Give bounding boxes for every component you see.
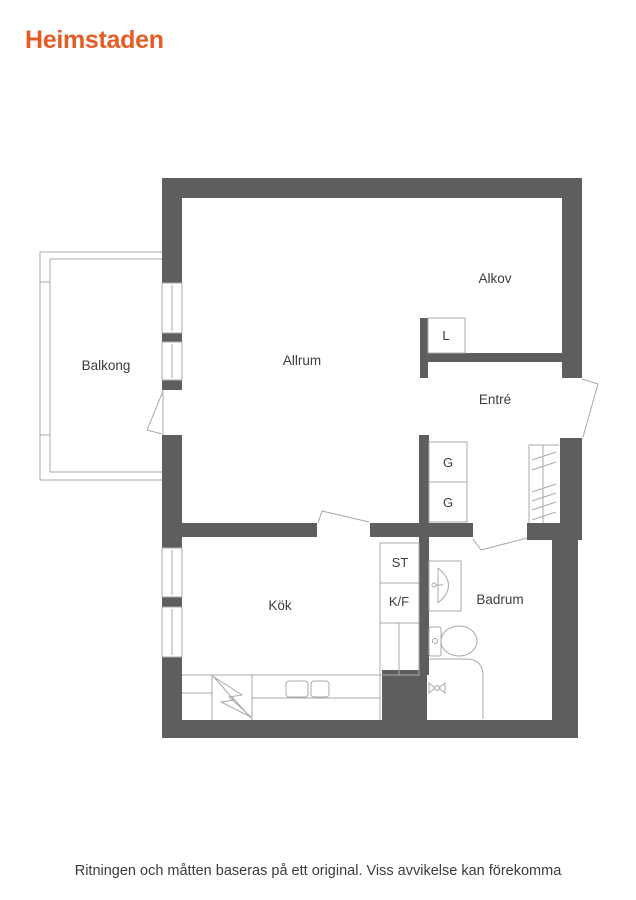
wall-segment xyxy=(162,333,182,342)
wall-segment xyxy=(162,657,182,720)
wall-segment xyxy=(560,438,582,523)
walls xyxy=(162,178,582,738)
wall-segment xyxy=(162,198,182,283)
bathroom-sink-icon xyxy=(429,561,461,611)
room-label-badrum: Badrum xyxy=(476,592,523,607)
wall-segment xyxy=(162,597,182,607)
floorplan-page: Heimstaden xyxy=(0,0,636,900)
wall-segment xyxy=(419,435,429,675)
sink-tap xyxy=(432,583,436,587)
wall-segment xyxy=(562,198,582,378)
room-label-alkov: Alkov xyxy=(478,271,511,286)
hanger-tick xyxy=(532,512,556,520)
wall-segment xyxy=(162,178,582,198)
cabinet-label-st: ST xyxy=(392,555,409,570)
hanger-tick xyxy=(532,502,556,510)
toilet-tank xyxy=(429,627,441,656)
kitchen-door-swing xyxy=(318,511,369,523)
coat-rack xyxy=(529,445,559,523)
room-label-kok: Kök xyxy=(268,598,292,613)
wall-segment xyxy=(552,537,578,738)
wall-segment xyxy=(428,353,562,362)
wall-segment xyxy=(420,318,428,378)
kitchen-counter xyxy=(182,675,380,720)
hanger-tick xyxy=(532,493,556,501)
entry-door-swing xyxy=(582,379,598,437)
kitchen-sink-basin xyxy=(286,681,308,697)
wall-segment xyxy=(382,670,427,720)
closet-label-g-upper: G xyxy=(443,455,453,470)
wall-segment xyxy=(162,720,578,738)
kitchen-sink-basin xyxy=(311,681,329,697)
room-label-balkong: Balkong xyxy=(82,358,131,373)
toilet-bowl xyxy=(441,626,477,656)
wall-segment xyxy=(162,380,182,390)
hanger-tick xyxy=(532,462,556,470)
bathroom-door-swing xyxy=(473,538,527,550)
bathroom-fixtures xyxy=(429,561,483,719)
hanger-tick xyxy=(532,452,556,460)
disclaimer-text: Ritningen och måtten baseras på ett orig… xyxy=(0,863,636,879)
toilet-flush-button xyxy=(433,639,438,644)
room-label-allrum: Allrum xyxy=(283,353,321,368)
closet-label-l: L xyxy=(442,328,449,343)
closet-label-g-lower: G xyxy=(443,495,453,510)
wall-segment xyxy=(162,523,317,537)
floorplan-drawing: Balkong Allrum Alkov Entré Kök Badrum L … xyxy=(0,0,636,840)
shower-area xyxy=(429,659,483,719)
hanger-tick xyxy=(532,484,556,492)
cabinet-label-kf: K/F xyxy=(389,594,409,609)
balcony-door-swing xyxy=(147,391,163,434)
room-label-entre: Entré xyxy=(479,392,511,407)
